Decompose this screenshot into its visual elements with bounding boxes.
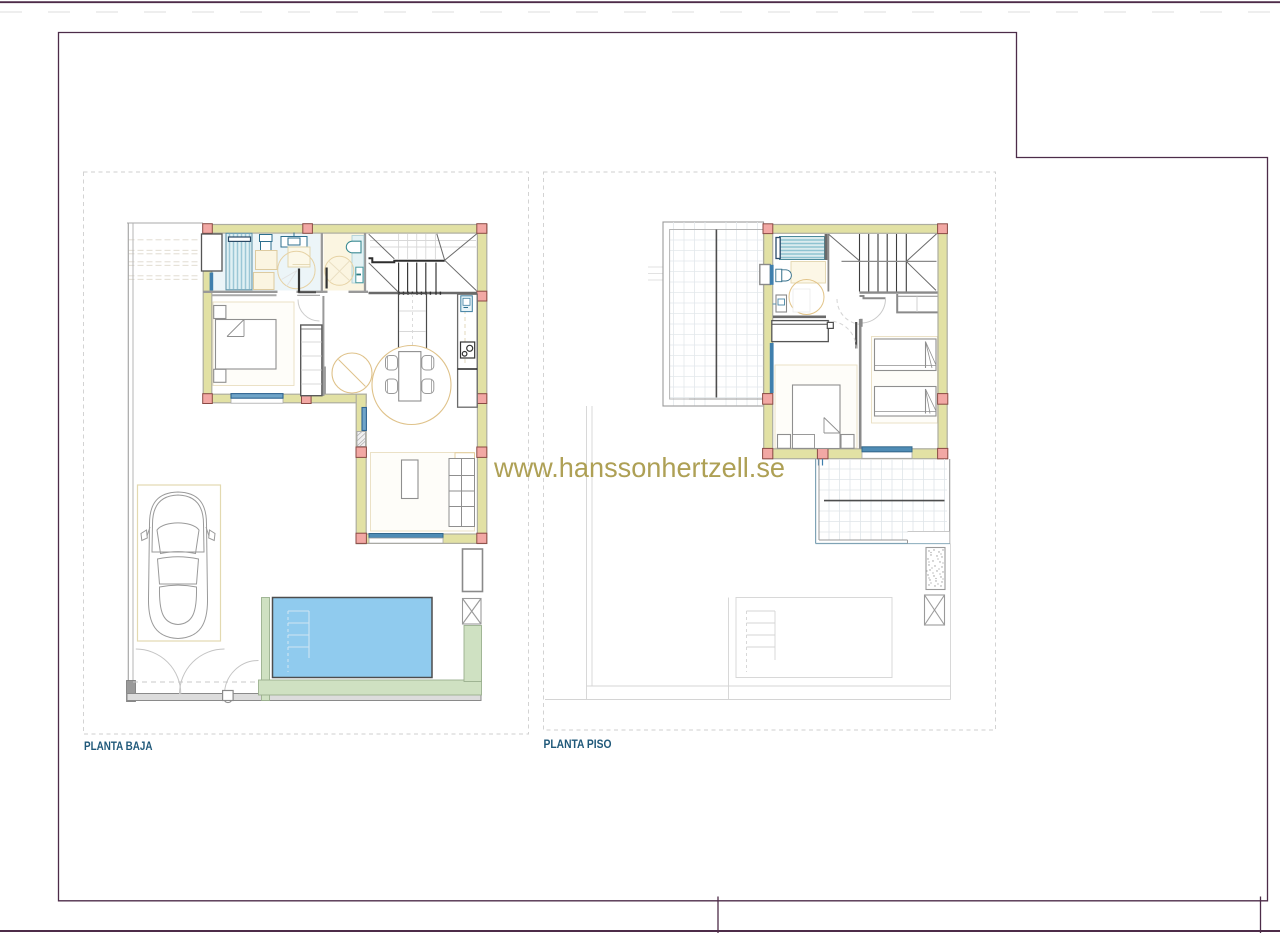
svg-text:PLANTA PISO: PLANTA PISO (544, 737, 612, 751)
svg-text:www.hanssonhertzell.se: www.hanssonhertzell.se (493, 452, 785, 483)
svg-text:PLANTA BAJA: PLANTA BAJA (84, 739, 153, 753)
